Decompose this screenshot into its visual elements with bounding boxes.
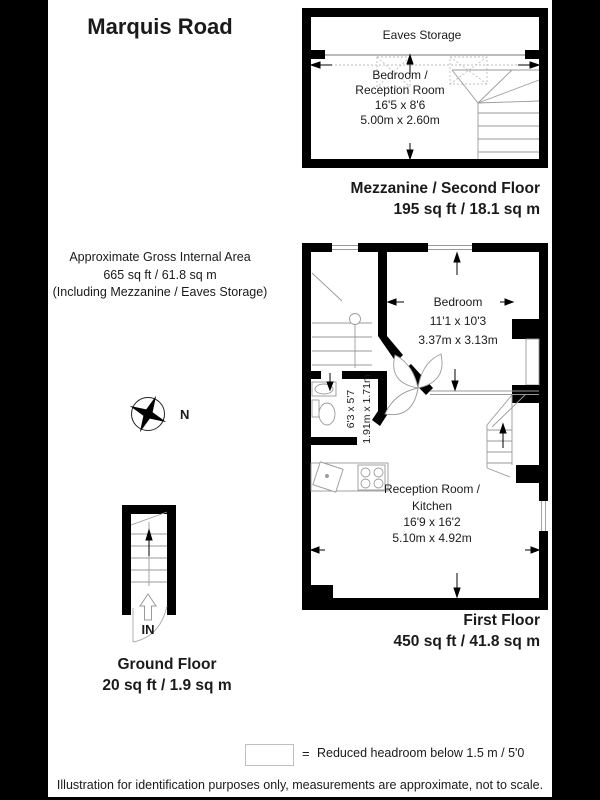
right-letterbox-bar xyxy=(552,0,600,800)
compass-north-label: N xyxy=(180,407,189,422)
mezzanine-floorplan: Eaves Storage Bedroom / Reception Room 1… xyxy=(300,8,550,170)
ground-floor-name: Ground Floor xyxy=(77,654,257,675)
bedroom-metric: 3.37m x 3.13m xyxy=(418,333,497,347)
bedroom-imperial: 11'1 x 10'3 xyxy=(430,314,487,328)
gross-area-line1: Approximate Gross Internal Area xyxy=(40,249,280,267)
ground-floor-area: 20 sq ft / 1.9 sq m xyxy=(77,675,257,696)
first-floor-name: First Floor xyxy=(290,610,540,631)
mezzanine-floor-name: Mezzanine / Second Floor xyxy=(290,178,540,199)
first-floor-floorplan: Bedroom 11'1 x 10'3 3.37m x 3.13m 6'3 x … xyxy=(300,243,550,613)
entrance-in-label: IN xyxy=(142,622,155,637)
mezz-room-name2: Reception Room xyxy=(355,83,444,97)
gross-area-line2: 665 sq ft / 61.8 sq m xyxy=(40,267,280,285)
legend-equals: = xyxy=(302,746,310,761)
bedroom-name: Bedroom xyxy=(434,295,483,309)
left-letterbox-bar xyxy=(0,0,48,800)
disclaimer-text: Illustration for identification purposes… xyxy=(44,778,556,792)
ground-floor-floorplan: IN xyxy=(118,498,188,650)
reception-name2: Kitchen xyxy=(412,499,452,513)
bathroom-imperial: 6'3 x 5'7 xyxy=(345,390,357,429)
kitchen-fixtures xyxy=(311,462,388,492)
first-floor-label: First Floor 450 sq ft / 41.8 sq m xyxy=(290,610,540,652)
reception-name1: Reception Room / xyxy=(384,482,481,496)
reception-imperial: 16'9 x 16'2 xyxy=(403,515,461,529)
eaves-storage-label: Eaves Storage xyxy=(383,28,462,42)
toilet-icon xyxy=(319,403,335,425)
reduced-headroom-swatch xyxy=(245,744,294,766)
compass-star-icon xyxy=(125,392,174,436)
compass-rose: N xyxy=(125,392,200,436)
gross-internal-area-note: Approximate Gross Internal Area 665 sq f… xyxy=(40,249,280,302)
window-icon xyxy=(539,501,548,531)
ground-floor-label: Ground Floor 20 sq ft / 1.9 sq m xyxy=(77,654,257,696)
toilet-cistern-icon xyxy=(312,400,319,417)
page-title: Marquis Road xyxy=(55,14,265,40)
mezz-room-metric: 5.00m x 2.60m xyxy=(360,113,439,127)
mezzanine-floor-area: 195 sq ft / 18.1 sq m xyxy=(290,199,540,220)
gross-area-line3: (Including Mezzanine / Eaves Storage) xyxy=(40,284,280,302)
mezz-room-imperial: 16'5 x 8'6 xyxy=(375,98,426,112)
legend-label: Reduced headroom below 1.5 m / 5'0 xyxy=(317,746,524,760)
bathroom-metric: 1.91m x 1.71m xyxy=(361,374,373,444)
mezzanine-floor-label: Mezzanine / Second Floor 195 sq ft / 18.… xyxy=(290,178,540,220)
mezz-room-name1: Bedroom / xyxy=(372,68,428,82)
first-floor-area: 450 sq ft / 41.8 sq m xyxy=(290,631,540,652)
reception-metric: 5.10m x 4.92m xyxy=(392,531,471,545)
